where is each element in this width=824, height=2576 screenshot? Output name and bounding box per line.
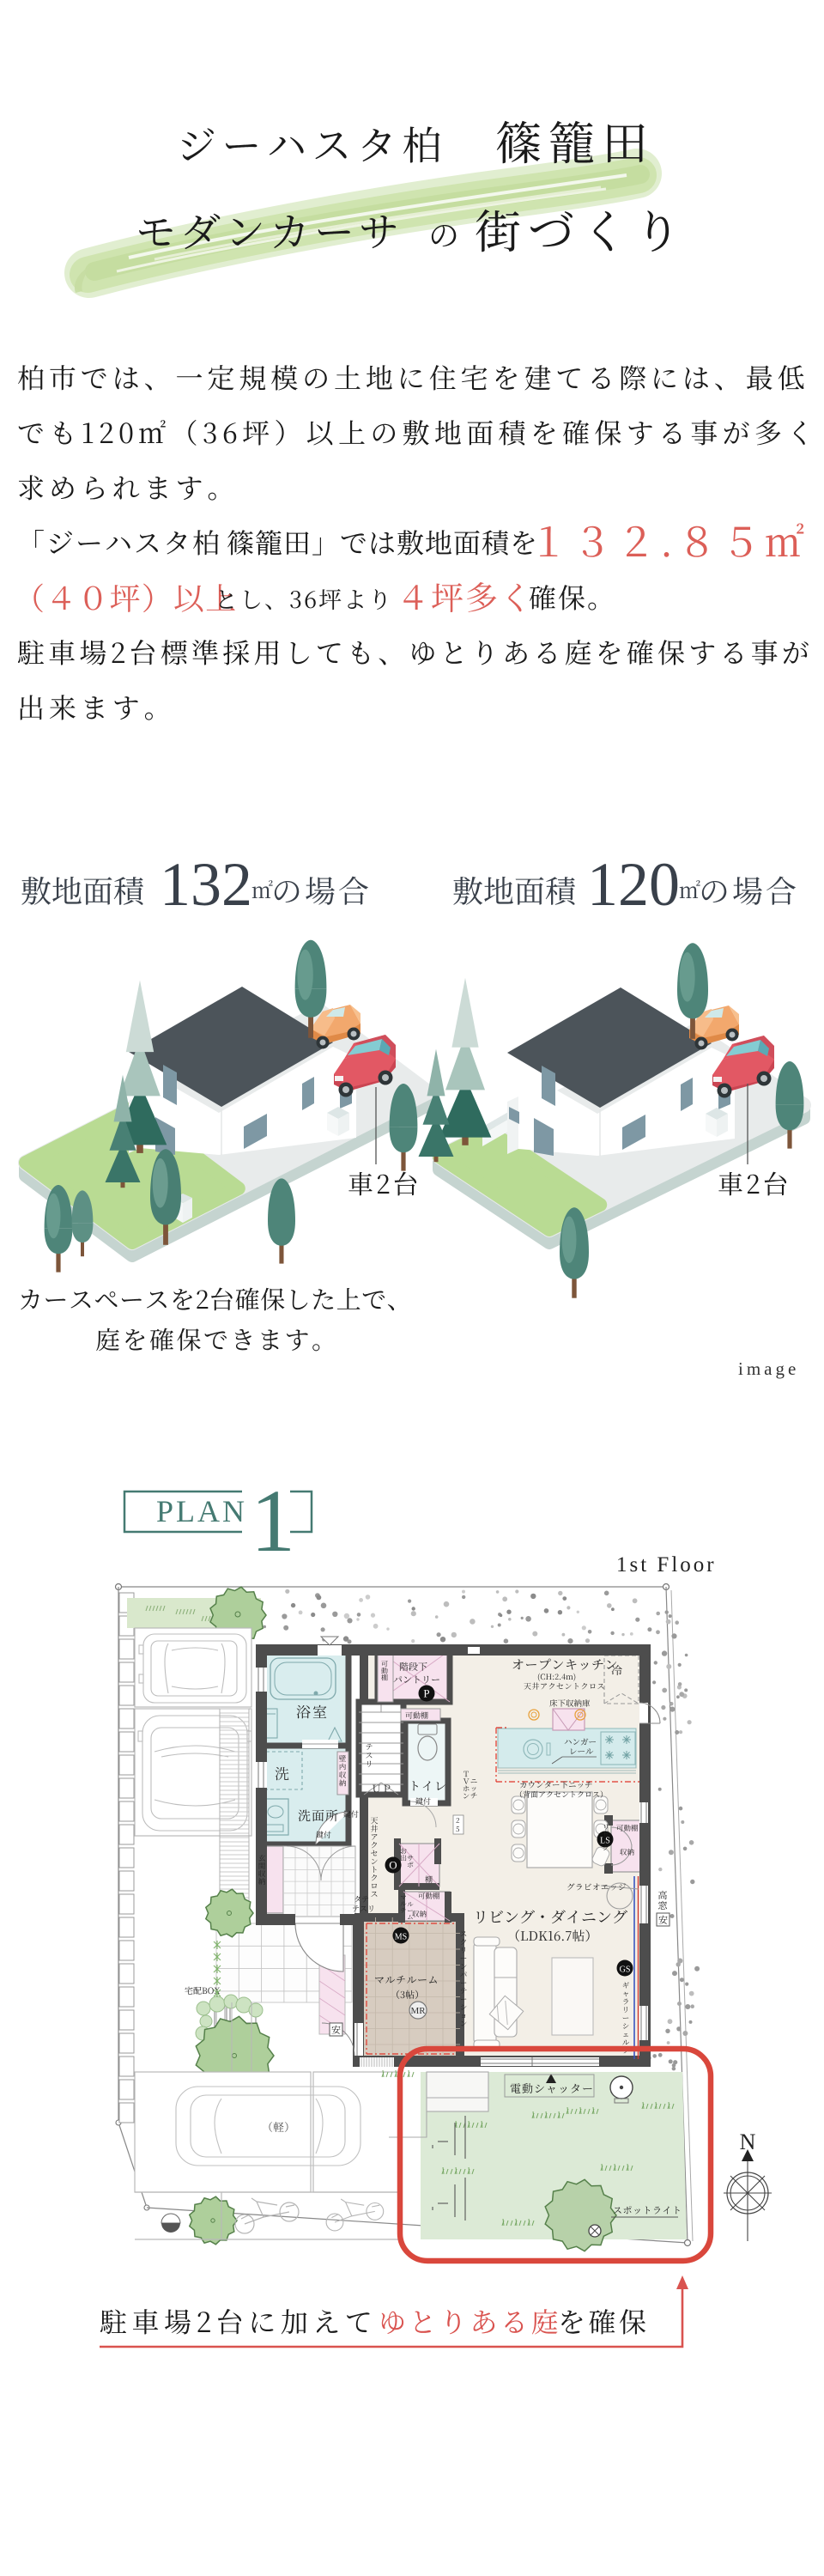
svg-text:N: N	[740, 2129, 756, 2154]
svg-text:1: 1	[251, 1472, 295, 1571]
svg-text:O: O	[389, 1859, 397, 1872]
svg-text:120: 120	[587, 850, 680, 919]
svg-text:PLAN: PLAN	[156, 1494, 247, 1528]
svg-text:132: 132	[160, 850, 252, 919]
svg-text:MS: MS	[395, 1933, 407, 1942]
svg-text:1st Floor: 1st Floor	[616, 1553, 717, 1577]
svg-text:LS: LS	[600, 1837, 610, 1846]
svg-text:P: P	[423, 1687, 429, 1700]
svg-text:MR: MR	[410, 2006, 426, 2016]
svg-text:image: image	[738, 1358, 799, 1379]
svg-text:GS: GS	[620, 1965, 631, 1975]
